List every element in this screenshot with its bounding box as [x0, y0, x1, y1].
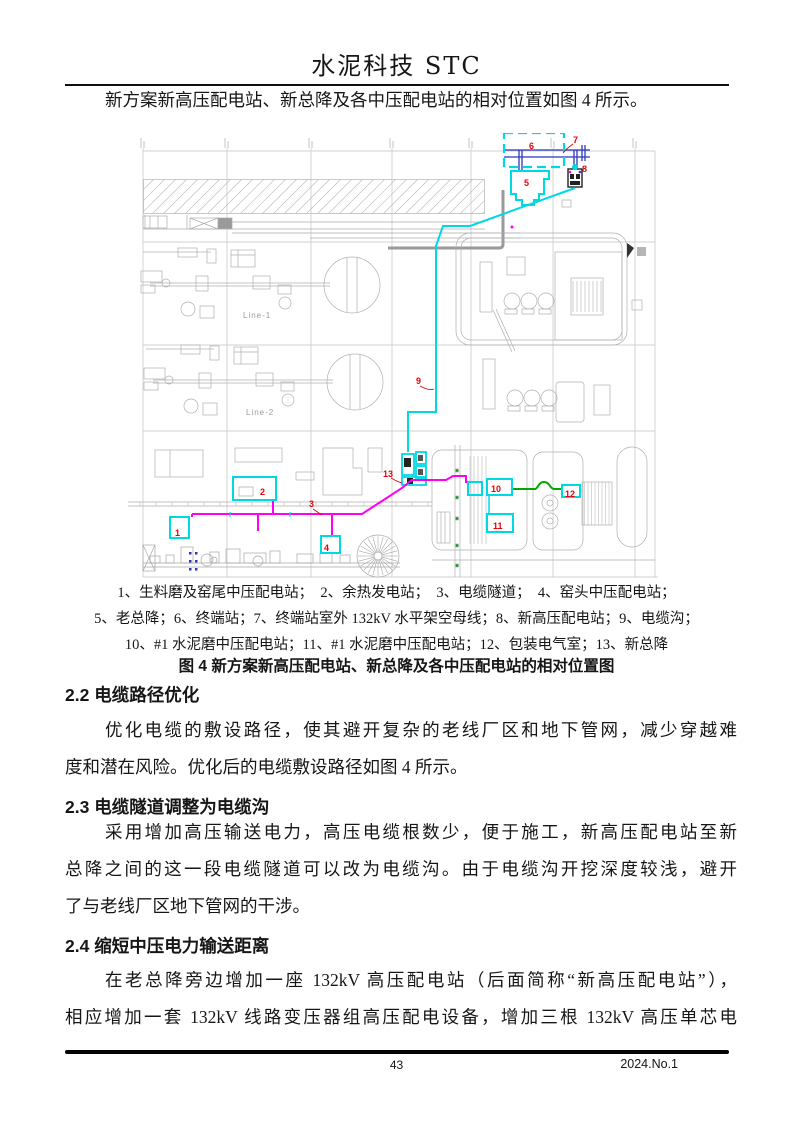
section-paragraph: 采用增加高压输送电力，高压电缆根数少，便于施工，新高压配电站至新总降之间的这一段… — [65, 814, 737, 925]
section-paragraph: 在老总降旁边增加一座 132kV 高压配电站（后面简称“新高压配电站”），相应增… — [65, 962, 737, 1036]
hatched-shed — [125, 177, 530, 215]
marker-8: 8 — [582, 164, 587, 174]
grid-tick-labels — [141, 138, 636, 148]
journal-title: 水泥科技 STC — [0, 46, 793, 81]
marker-3: 3 — [309, 499, 314, 509]
line1-machinery — [141, 248, 554, 318]
green-cable-link — [512, 482, 562, 489]
marker-10: 10 — [491, 484, 501, 494]
section-heading: 2.4 缩短中压电力输送距离 — [65, 934, 737, 958]
marker-12: 12 — [565, 489, 575, 499]
mid-buildings — [155, 448, 382, 495]
figure-4-site-plan: Line-1 Line-2 — [125, 133, 660, 580]
new-hv-station — [568, 164, 582, 187]
marker-4: 4 — [324, 543, 329, 553]
legend-line: 5、老总降；6、终端站；7、终端站室外 132kV 水平架空母线；8、新高压配电… — [56, 606, 737, 632]
marker-13: 13 — [383, 469, 393, 479]
plant-road — [128, 502, 432, 506]
footer-rule — [65, 1050, 729, 1054]
marker-7: 7 — [573, 135, 578, 145]
line1-label: Line-1 — [243, 311, 271, 320]
section-paragraph: 优化电缆的敷设路径，使其避开复杂的老线厂区和地下管网，减少穿越难度和潜在风险。优… — [65, 712, 737, 786]
paragraph-line: 了与老线厂区地下管网的干涉。 — [65, 888, 737, 925]
right-complex — [388, 190, 646, 422]
line2-label: Line-2 — [246, 408, 274, 417]
issue-label: 2024.No.1 — [620, 1057, 678, 1071]
cable-trench-route — [408, 188, 575, 452]
marker-6: 6 — [529, 141, 534, 151]
conveyor-row — [143, 200, 571, 238]
legend-line: 1、生料磨及窑尾中压配电站； 2、余热发电站； 3、电缆隧道； 4、窑头中压配电… — [56, 580, 737, 606]
intro-paragraph: 新方案新高压配电站、新总降及各中压配电站的相对位置如图 4 所示。 — [65, 82, 737, 119]
plan-grid — [143, 148, 658, 577]
marker-9: 9 — [416, 376, 421, 386]
marker-11: 11 — [493, 521, 503, 531]
bottom-machinery — [143, 535, 400, 577]
paragraph-line: 相应增加一套 132kV 线路变压器组高压配电设备，增加三根 132kV 高压单… — [65, 999, 737, 1036]
figure-caption: 图 4 新方案新高压配电站、新总降及各中压配电站的相对位置图 — [56, 654, 737, 676]
marker-2: 2 — [260, 487, 265, 497]
marker-5: 5 — [524, 178, 529, 188]
line2-machinery — [144, 345, 557, 415]
marker-1: 1 — [175, 528, 180, 538]
intro-line: 新方案新高压配电站、新总降及各中压配电站的相对位置如图 4 所示。 — [65, 82, 737, 119]
section-heading: 2.2 电缆路径优化 — [65, 683, 737, 707]
paragraph-line: 在老总降旁边增加一座 132kV 高压配电站（后面简称“新高压配电站”）， — [65, 962, 737, 999]
packing-area — [432, 445, 655, 577]
paragraph-line: 总降之间的这一段电缆隧道可以改为电缆沟。由于电缆沟开挖深度较浅，避开 — [65, 851, 737, 888]
figure-legend: 1、生料磨及窑尾中压配电站； 2、余热发电站； 3、电缆隧道； 4、窑头中压配电… — [56, 580, 737, 658]
paragraph-line: 优化电缆的敷设路径，使其避开复杂的老线厂区和地下管网，减少穿越难 — [65, 712, 737, 749]
paragraph-line: 采用增加高压输送电力，高压电缆根数少，便于施工，新高压配电站至新 — [65, 814, 737, 851]
red-markers: 12345678910111213 — [175, 135, 587, 553]
paragraph-line: 度和潜在风险。优化后的电缆敷设路径如图 4 所示。 — [65, 749, 737, 786]
road-ticks — [140, 502, 428, 506]
journal-page: 水泥科技 STC 新方案新高压配电站、新总降及各中压配电站的相对位置如图 4 所… — [0, 0, 793, 1122]
